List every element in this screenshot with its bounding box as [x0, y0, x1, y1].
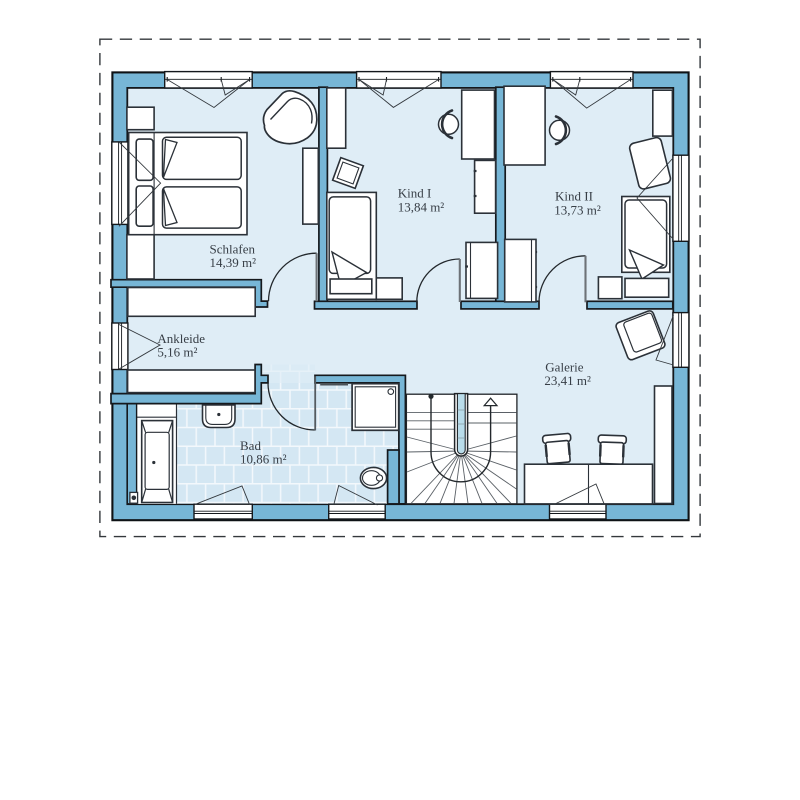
svg-text:Kind I: Kind I — [398, 186, 432, 201]
svg-text:14,39 m²: 14,39 m² — [210, 255, 257, 270]
svg-text:13,73 m²: 13,73 m² — [554, 203, 601, 218]
svg-text:10,86 m²: 10,86 m² — [240, 452, 287, 467]
svg-text:5,16 m²: 5,16 m² — [157, 345, 197, 360]
svg-text:23,41 m²: 23,41 m² — [544, 373, 591, 388]
svg-text:Kind II: Kind II — [555, 189, 593, 204]
svg-text:13,84 m²: 13,84 m² — [398, 200, 445, 215]
